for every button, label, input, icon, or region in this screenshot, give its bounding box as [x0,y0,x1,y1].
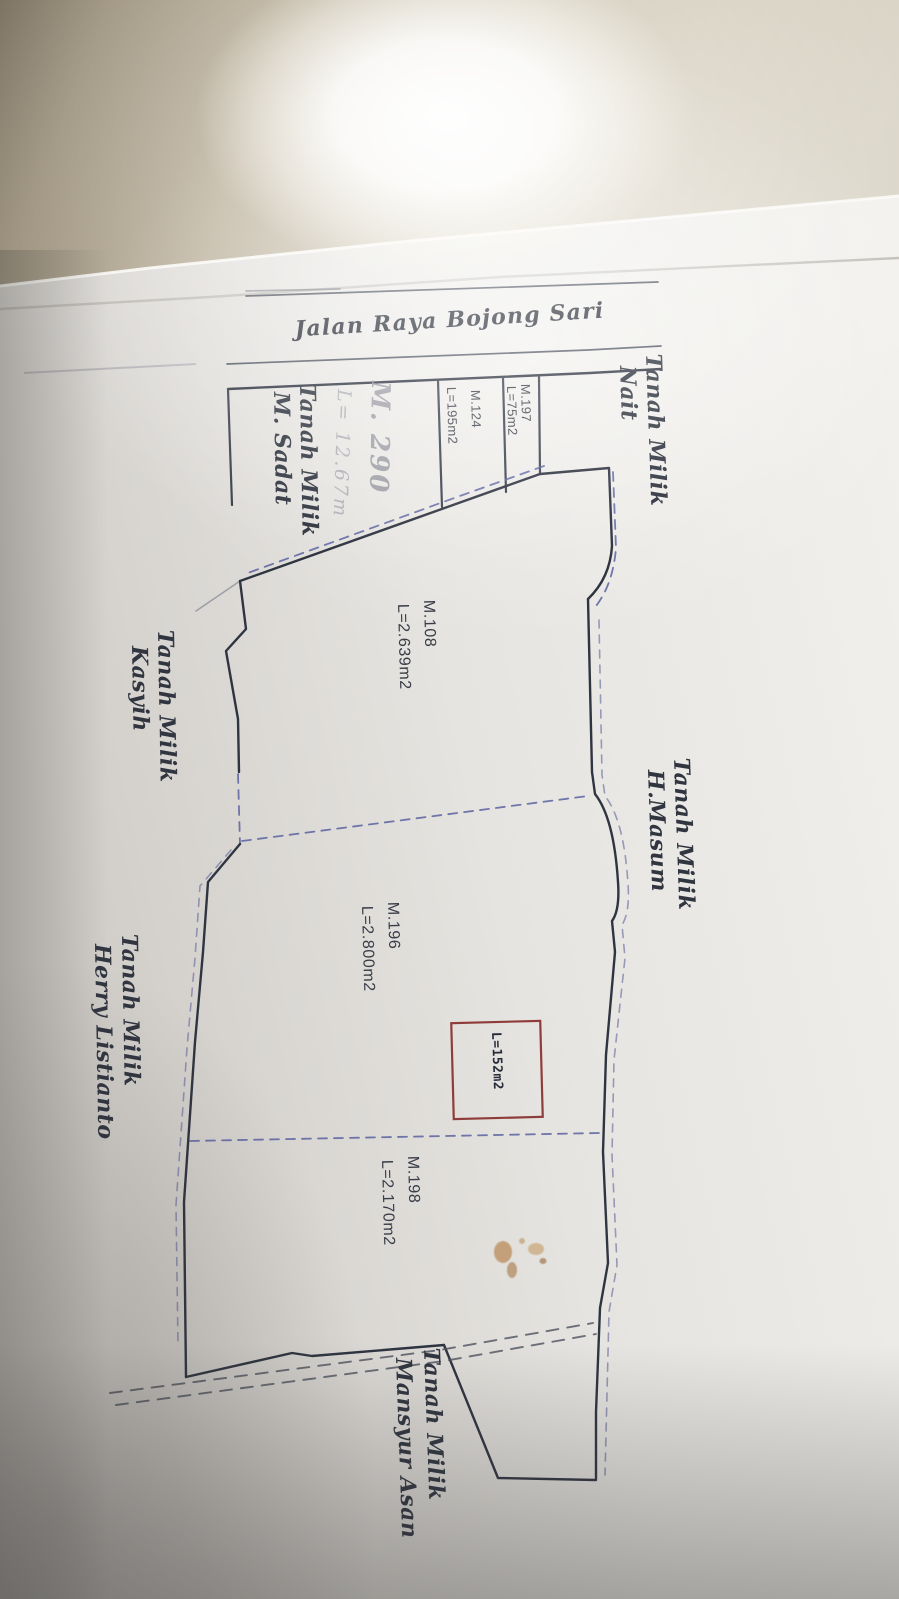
shading [0,0,899,1599]
land-map-scene: Jalan Raya Bojong Sari Tanah Milik Nait … [0,0,899,1599]
photo-of-land-map: Jalan Raya Bojong Sari Tanah Milik Nait … [0,0,899,1599]
